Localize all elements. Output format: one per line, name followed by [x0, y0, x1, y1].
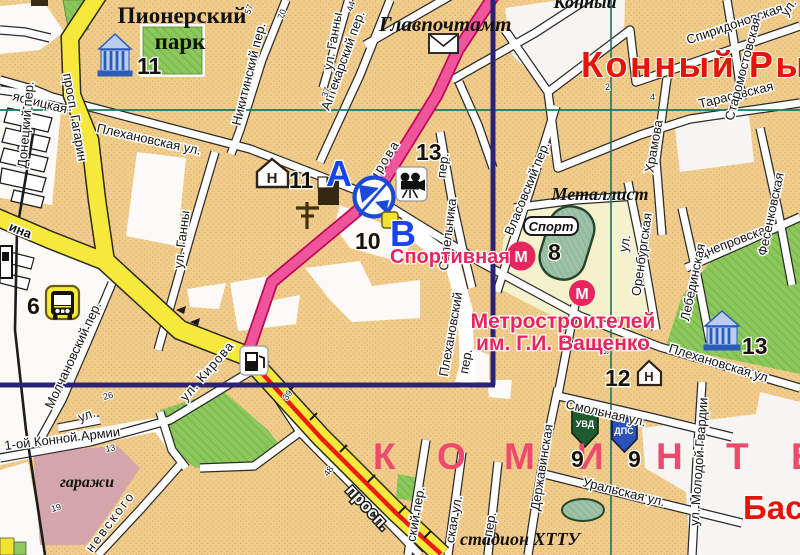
svg-text:Н: Н — [267, 170, 278, 187]
svg-text:Пионерский: Пионерский — [118, 3, 247, 28]
svg-text:гаражи: гаражи — [60, 474, 114, 491]
svg-text:парк: парк — [155, 29, 207, 54]
svg-text:Метростроителей: Метростроителей — [471, 310, 656, 333]
svg-text:10: 10 — [355, 228, 381, 254]
svg-text:4: 4 — [650, 92, 655, 102]
svg-text:Е: Е — [791, 436, 800, 477]
svg-text:Спорт: Спорт — [529, 219, 574, 234]
svg-text:13: 13 — [742, 333, 768, 359]
svg-text:11: 11 — [137, 53, 162, 79]
svg-text:13: 13 — [105, 442, 117, 454]
svg-text:Т: Т — [726, 436, 749, 477]
svg-text:Металлист: Металлист — [551, 184, 649, 204]
svg-text:Спортивная: Спортивная — [390, 246, 510, 268]
svg-text:6: 6 — [27, 293, 40, 319]
svg-text:К: К — [373, 436, 396, 477]
svg-text:Конный: Конный — [552, 0, 616, 12]
svg-text:12: 12 — [605, 365, 631, 391]
svg-text:им. Г.И. Ващенко: им. Г.И. Ващенко — [476, 332, 650, 355]
svg-text:УВД: УВД — [576, 419, 595, 429]
svg-text:Главпочтамт: Главпочтамт — [378, 12, 511, 36]
svg-text:9: 9 — [571, 446, 584, 472]
svg-text:11: 11 — [289, 167, 314, 193]
svg-text:М: М — [504, 436, 535, 477]
svg-text:М: М — [575, 286, 588, 303]
svg-text:Бас: Бас — [743, 489, 800, 526]
svg-text:8: 8 — [548, 239, 561, 265]
svg-text:Н: Н — [656, 436, 683, 477]
svg-text:Н: Н — [644, 369, 653, 384]
svg-text:А: А — [326, 153, 352, 194]
svg-text:ДПС: ДПС — [614, 426, 634, 436]
svg-text:9: 9 — [628, 446, 641, 472]
svg-text:2: 2 — [605, 82, 610, 92]
svg-text:М: М — [514, 249, 527, 266]
svg-text:стадион ХТТУ: стадион ХТТУ — [460, 529, 582, 549]
svg-text:ул.: ул. — [616, 233, 634, 253]
svg-text:О: О — [437, 436, 466, 477]
svg-text:пер.: пер. — [434, 152, 452, 179]
